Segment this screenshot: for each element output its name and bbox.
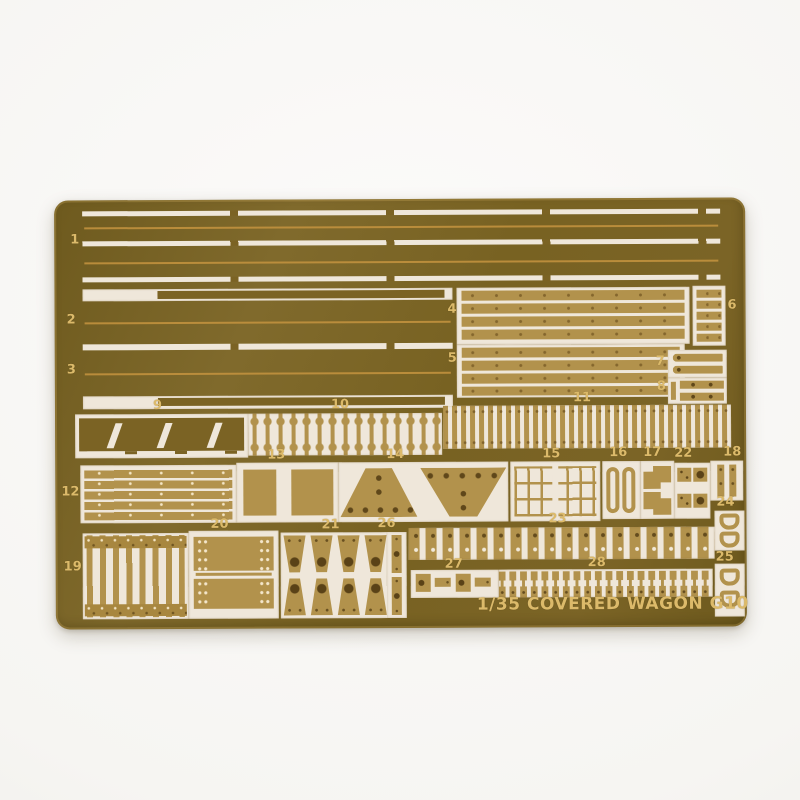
riveted-strip [462,386,680,396]
riveted-bar [717,465,724,497]
hanger [364,578,388,615]
loop [719,514,739,530]
square-plate-hole [693,494,707,508]
part-number-20: 20 [210,518,228,531]
part-number-12: 12 [61,485,79,498]
part-number-3: 3 [67,363,76,376]
etch-strip [157,290,444,299]
panel [243,470,276,516]
bracket [643,492,671,515]
part-20-group [189,531,279,619]
hanger [364,535,388,572]
lattice-gap [552,464,558,518]
part-11-group [443,405,731,449]
part-number-22: 22 [674,447,692,460]
thin-strip [196,573,272,576]
hanger [283,578,307,615]
part-number-28: 28 [588,556,606,569]
part-5-group [457,344,685,398]
part-12-group [80,465,236,524]
part-8-group [668,378,727,404]
etch-bar [671,382,676,400]
part-14-group [338,462,508,523]
part-number-21: 21 [321,518,339,531]
part-24-group [714,511,744,551]
part-7-group [668,350,727,378]
gusset [420,468,506,517]
hanger [310,578,334,615]
strip-cap [85,536,187,548]
riveted-plate [697,334,722,342]
loop [720,569,740,586]
gusset [340,468,417,517]
hanger [310,535,334,572]
frame-slot [87,451,237,455]
part-number-4: 4 [448,303,457,316]
part-number-17: 17 [643,446,661,459]
part-17-group [640,461,674,519]
etched-brass-fret: 1 2 3 4 5 6 7 8 9 10 11 12 13 14 15 16 1… [54,197,747,629]
part-number-26: 26 [377,517,395,530]
square-plate [677,494,691,508]
part-6-group [692,286,725,346]
part-number-9: 9 [153,399,162,412]
etch-line [84,260,718,265]
strip-cap [85,604,187,616]
part-4-group [456,287,689,345]
oval-ring [606,467,619,513]
clip-bar [435,578,451,587]
bracket [643,466,671,489]
riveted-plate [194,579,274,609]
part-number-23: 23 [548,512,566,525]
riveted-plate [696,290,721,298]
product-photo: 1 2 3 4 5 6 7 8 9 10 11 12 13 14 15 16 1… [0,0,800,800]
part-16-group [602,461,640,519]
eye-clip [456,574,471,592]
drilled-bar [392,577,402,615]
part-22-group [674,463,710,519]
eye-strip [673,366,723,374]
part-number-18: 18 [723,446,741,459]
panel [291,469,333,515]
etch-slot [82,275,720,283]
riveted-bar [729,465,736,497]
riveted-strip [462,373,680,384]
clip-bar [475,578,491,587]
part-number-16: 16 [609,446,627,459]
part-number-19: 19 [64,560,82,573]
riveted-plate [194,537,274,571]
oval-ring [622,467,635,513]
part-number-14: 14 [386,448,404,461]
drilled-strip [680,393,724,401]
part-number-5: 5 [448,352,457,365]
part-number-10: 10 [331,398,349,411]
etch-slot [82,209,720,217]
hanger [283,535,307,572]
square-plate [677,468,691,482]
part-23-group [408,527,714,560]
hanger [337,535,361,572]
drilled-bar [392,535,402,573]
etch-slot [83,343,453,351]
part-19-group [83,533,189,619]
drilled-strip [680,381,724,389]
riveted-plate [697,301,722,309]
part-number-24: 24 [716,496,734,509]
part-26-group [387,532,407,618]
riveted-strip [462,329,685,340]
etch-line [85,321,451,325]
etch-slot [82,239,720,247]
riveted-plate [697,323,722,331]
part-9-group [75,414,248,459]
part-number-1: 1 [70,233,79,246]
etch-line [85,372,451,376]
part-number-11: 11 [573,391,591,404]
hanger [337,578,361,615]
part-number-15: 15 [542,447,560,460]
riveted-strip [462,316,685,327]
riveted-strip [462,360,680,371]
etch-line [84,225,718,230]
eye-strip [673,354,723,362]
etched-title: 1/35 COVERED WAGON G10 [477,594,717,615]
part-number-13: 13 [267,449,285,462]
part-number-8: 8 [657,380,666,393]
etch-strip [158,397,445,406]
part-21-group [281,532,389,618]
eye-clip [416,574,431,592]
riveted-strip [462,303,685,314]
part-number-25: 25 [716,551,734,564]
square-plate-hole [693,468,707,482]
riveted-plate [697,312,722,320]
part-13-group [236,462,338,522]
part-number-2: 2 [67,313,76,326]
riveted-strip [461,290,684,301]
loop [720,532,740,548]
part-number-6: 6 [728,299,737,312]
part-number-27: 27 [445,558,463,571]
riveted-strips [84,468,232,521]
part-number-7: 7 [656,355,665,368]
riveted-strip [462,347,680,358]
